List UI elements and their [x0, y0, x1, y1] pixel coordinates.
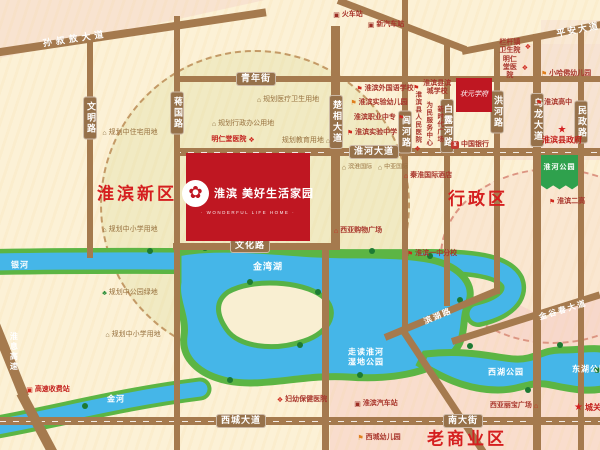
poi-harvard-kindergarten: ⚑ 小哈佛幼儿园	[541, 70, 591, 78]
school-icon: ⚑	[398, 114, 404, 121]
wetland-park-label: 走读淮河 湿地公园	[344, 348, 388, 369]
road-label-chuxiang: 楚相大道	[329, 95, 343, 149]
poi-no2-high-school: ⚑ 淮滨二高	[549, 198, 585, 206]
poi-plan-residential: ⌂ 规划中住宅用地	[102, 129, 157, 137]
poi-peoples-hospital: 淮滨县人民医院 ❖	[413, 91, 420, 154]
road-honghe	[494, 44, 500, 294]
poi-county-government: ★ 淮滨县政府	[542, 125, 582, 144]
poi-maternal-hospital: ❖ 妇幼保健医院	[277, 396, 327, 404]
poi-experimental-kindergarten: ⚑ 淮滨实验幼儿园	[350, 99, 407, 107]
poi-plan-primary-1: ⌂ 规划中小学用地	[102, 226, 157, 234]
planning-icon: ⌂	[102, 129, 106, 136]
bus-icon: ▣	[368, 21, 375, 28]
poi-xiya-mall: ⌂ 西亚购物广场	[334, 227, 382, 235]
building-icon: ⌂	[378, 165, 382, 172]
xihu-park-label: 西湖公园	[488, 367, 524, 378]
poi-bank-of-china: ¥ 中国银行	[451, 141, 489, 149]
road-jiangguo	[174, 16, 180, 450]
poi-mingrentang-ne: 明仁堂医院 ❖	[500, 56, 528, 80]
poi-plan-green: ♣ 规划中公园绿地	[102, 289, 158, 297]
poi-bus-station: ▣ 淮滨汽车站	[354, 400, 398, 408]
poi-xicheng-kindergarten: ⚑ 西城幼儿园	[357, 434, 400, 442]
huaihe-park-banner: 淮河公园	[541, 155, 578, 192]
hotel-icon: ⌂	[404, 172, 408, 179]
road-label-qingnian: 青年街	[236, 72, 276, 86]
huaihe-park-label: 淮河公园	[544, 162, 576, 192]
road-minzheng	[578, 28, 584, 450]
planning-icon: ⌂	[105, 331, 109, 338]
district-new-area: 淮滨新区	[97, 180, 177, 205]
poi-yizhong-branch: ⚑ 淮滨一中分校	[407, 250, 457, 258]
poi-plan-primary-2: ⌂ 规划中小学用地	[105, 331, 160, 339]
bus-icon: ▣	[354, 400, 361, 407]
road-label-wenhua: 文化路	[230, 239, 270, 253]
poi-mingrentang-west: 明仁堂医院 ❖	[211, 136, 254, 144]
school-icon: ⚑	[407, 250, 413, 257]
road-label-jiangguo: 蒋国路	[170, 92, 184, 135]
road-label-wenming: 文明路	[83, 97, 97, 140]
bank-icon: ¥	[451, 141, 459, 149]
hospital-icon: ❖	[248, 136, 254, 143]
hospital-icon: ❖	[522, 64, 528, 71]
building-icon: ⌂	[342, 165, 346, 172]
district-admin-area: 行政区	[448, 185, 508, 210]
project-name: 淮滨 美好生活家园	[214, 185, 314, 201]
road-xicheng-nandajie	[0, 417, 600, 425]
hospital-icon: ❖	[525, 44, 531, 51]
school-icon: ⚑	[347, 129, 353, 136]
government-star-icon: ★	[558, 125, 567, 135]
project-block[interactable]: ✿ 淮滨 美好生活家园 · WONDERFUL LIFE HOME ·	[186, 153, 310, 241]
mall-icon: ⌂	[334, 227, 338, 234]
location-map: 孙叔敖大道 平安大道 青年街 文明路 蒋国路 楚相大道 闾河路 白露河路 洪河路…	[0, 0, 600, 450]
poi-chengguan: ★ 城关镇	[574, 403, 600, 413]
planning-icon: ⌂	[102, 226, 106, 233]
poi-huaibin-high: ⚑ 淮滨高中	[536, 99, 572, 107]
poi-plan-education: 规划教育用地 ⌂	[282, 137, 330, 145]
train-icon: ▣	[333, 11, 340, 18]
poi-plan-admin: ⌂ 规划行政办公用地	[212, 120, 274, 128]
jinhe-label: 金河	[107, 394, 125, 405]
zhuangyuan-label: 状元学府	[460, 91, 488, 99]
poi-binhuai-international: ⌂ 滨淮国际	[342, 165, 372, 172]
jinwanhu-label: 金湾湖	[253, 260, 283, 273]
project-emblem-icon: ✿	[182, 180, 209, 207]
poi-xiya-libao-plaza: 西亚丽宝广场 ⌂	[490, 402, 538, 410]
road-chuxiang-south	[322, 247, 329, 450]
road-label-huaixi-expressway: 淮息高速	[8, 328, 19, 376]
poi-experimental-middle-school: ⚑ 淮滨实验中学	[347, 129, 397, 137]
poi-toll-gate: ▣ 高速收费站	[26, 386, 70, 394]
poi-vocational-school: 淮滨职业中专 ⚑	[354, 114, 404, 122]
yinhe-label: 银河	[11, 260, 29, 271]
lake-island	[218, 283, 331, 347]
hospital-icon: ❖	[277, 396, 283, 403]
road-label-honghe: 洪河路	[490, 91, 504, 134]
kindergarten-icon: ⚑	[350, 99, 356, 106]
park-tree-icon: ♣	[102, 289, 107, 296]
toll-gate-icon: ▣	[26, 386, 33, 393]
planning-icon: ⌂	[257, 96, 261, 103]
hospital-icon: ❖	[414, 144, 421, 153]
planning-icon: ⌂	[212, 120, 216, 127]
mall-icon: ⌂	[534, 402, 538, 409]
donghu-park-label: 东湖公园	[572, 364, 600, 375]
poi-service-center: 为民服务中心	[424, 102, 431, 147]
poi-new-era-plaza: 新时代广场	[435, 105, 442, 143]
road-label-huaihe-avenue: 淮河大道	[349, 145, 399, 159]
school-icon: ⚑	[549, 198, 555, 205]
planning-icon: ⌂	[326, 137, 330, 144]
road-wenming	[87, 40, 93, 258]
school-icon: ⚑	[536, 99, 542, 106]
poi-languan-clinic: 栏杆镇卫生院 ❖	[497, 39, 531, 55]
road-label-xicheng: 西城大道	[216, 414, 266, 428]
kindergarten-icon: ⚑	[357, 434, 363, 441]
poi-plan-medical: ⌂ 规划医疗卫生用地	[257, 96, 319, 104]
zhuangyuan-block[interactable]: 状元学府	[456, 78, 492, 112]
poi-foreign-language-school: ⚑ 淮滨外国语学校	[356, 85, 413, 93]
district-old-business: 老商业区	[427, 425, 507, 450]
poi-train-station: ▣ 火车站	[333, 11, 363, 19]
government-star-icon: ★	[574, 403, 583, 413]
school-icon: ⚑	[356, 85, 362, 92]
project-name-en: · WONDERFUL LIFE HOME ·	[201, 210, 295, 215]
poi-new-bus-station: ▣ 新汽车站	[368, 21, 405, 29]
poi-qinhuai-hotel: ⌂ 秦淮国际酒店	[404, 172, 452, 180]
poi-zhongya-international: ⌂ 中亚国际	[378, 165, 408, 172]
kindergarten-icon: ⚑	[541, 70, 547, 77]
